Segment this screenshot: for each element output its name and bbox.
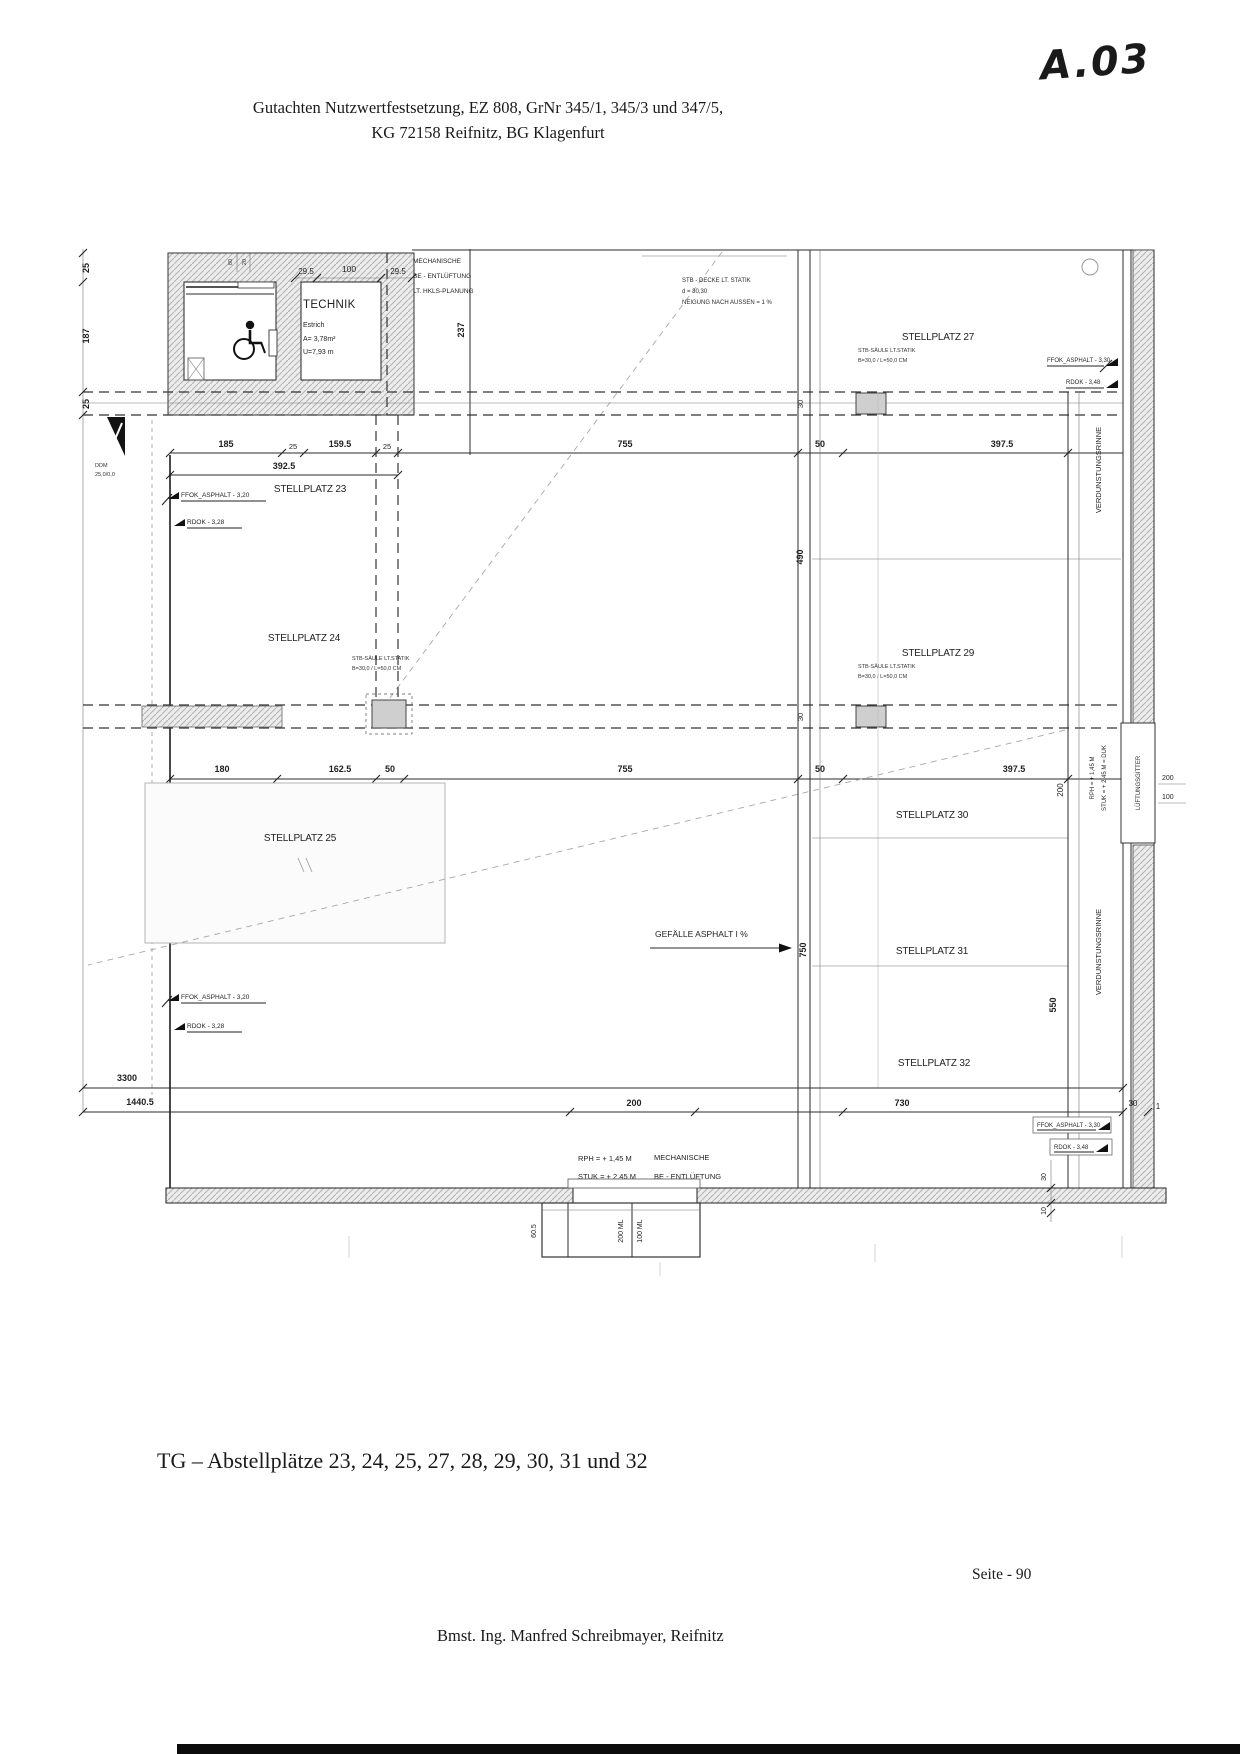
stall-label-25: STELLPLATZ 25 [264,833,337,844]
ffok-3-20-a: FFOK_ASPHALT - 3,20 [181,492,250,499]
dim-29-5-b: 29.5 [390,267,406,276]
ffok-3-30-top: FFOK_ASPHALT - 3,30 [1047,358,1111,364]
dim-20: 20 [242,259,248,265]
technik-estrich: Estrich [303,322,325,329]
ffok-3-20-b: FFOK_ASPHALT - 3,20 [181,994,250,1001]
diagonal-construction-line-a [378,252,722,714]
saeule-note-27-2: B=30,0 / L=50,0 CM [858,358,908,364]
elevator-technik-block [168,252,416,415]
saeule-note-29-1: STB-SÄULE LT.STATIK [858,663,916,670]
gefaelle-label: GEFÄLLE ASPHALT I % [655,929,748,939]
dim-200-right: 200 [1056,783,1065,797]
gefaelle-arrow [650,944,792,953]
mech-top-1: MECHANISCHE [413,258,462,265]
rdok-3-28-a: RDOK - 3,28 [187,519,225,526]
ddm-label-2: 25,0/0,0 [95,472,115,478]
dim-100-gitter: 100 [1162,794,1174,801]
dim-100-ml: 100 ML [637,1219,644,1242]
dim-30-band-top: 30 [796,400,805,408]
dimension-row-bottom [79,1084,1152,1116]
dim-397-5-r2: 397.5 [1003,764,1026,774]
dim-30-wall: 30 [1041,1173,1048,1181]
dim-25-left-mid: 25 [81,399,91,409]
floor-plan-drawing: 29.5 100 29.5 TECHNIK Estrich A= 3,78m² … [0,0,1240,1754]
rph-right: RPH = + 1,45 M [1090,756,1096,799]
dim-25-r1a: 25 [289,442,297,451]
bottom-wall [166,1179,1166,1203]
dim-1: 1 [1156,1102,1161,1111]
stuk-duk-right: STUK = + 2,45 M = DUK [1102,745,1108,811]
saeule-note-27-1: STB-SÄULE LT.STATIK [858,347,916,354]
mech-top-3: LT. HKLS-PLANUNG [413,288,474,295]
dim-490: 490 [795,549,805,564]
stall-label-32: STELLPLATZ 32 [898,1058,971,1069]
scan-artifact-bar [177,1744,1240,1754]
rdok-3-48-top: RDOK - 3,48 [1066,380,1101,386]
rph-bottom: RPH = + 1,45 M [578,1154,632,1163]
ffok-3-30-bottom: FFOK_ASPHALT - 3,30 [1037,1123,1101,1129]
room-label-technik: TECHNIK [303,299,356,311]
lueftungsgitter-label: LÜFTUNGSGITTER [1135,755,1142,810]
dim-200-gitter: 200 [1162,775,1174,782]
left-dimension-line [79,249,87,1112]
dim-80: 80 [228,259,234,265]
saeule-note-24-1: STB-SÄULE LT.STATIK [352,655,410,662]
dimension-row-1 [166,449,1123,479]
ceiling-opening-circle [1082,259,1098,275]
page-number: Seite - 90 [972,1566,1031,1584]
bottom-reference-ticks [349,1236,1122,1276]
verdunstungsrinne-bottom: VERDUNSTUNGSRINNE [1094,909,1103,995]
stall-label-23: STELLPLATZ 23 [274,484,347,495]
figure-caption: TG – Abstellplätze 23, 24, 25, 27, 28, 2… [157,1448,648,1474]
right-gutter-lines [1068,392,1079,1188]
stall-25-region [145,783,445,943]
scanned-document-page: Gutachten Nutzwertfestsetzung, EZ 808, G… [0,0,1240,1754]
dim-750: 750 [798,942,808,957]
decke-note-2: d = 30,30 [682,289,708,295]
dim-200-ml: 200 ML [618,1219,625,1242]
saeule-note-24-2: B=30,0 / L=50,0 CM [352,666,402,672]
dim-200-bottom: 200 [626,1098,641,1108]
dim-392-5: 392.5 [273,461,296,471]
ddm-label-1: DDM [95,463,108,469]
stall-label-31: STELLPLATZ 31 [896,946,969,957]
dim-730: 730 [894,1098,909,1108]
saeule-note-29-2: B=30,0 / L=50,0 CM [858,674,908,680]
rdok-3-48-bottom: RDOK - 3,48 [1054,1145,1089,1151]
dim-29-5-a: 29.5 [298,267,314,276]
dim-550: 550 [1048,997,1058,1012]
dim-237: 237 [456,322,466,337]
dim-755-r1: 755 [617,439,632,449]
dim-25-r1b: 25 [383,442,391,451]
dim-30-band-mid: 30 [796,713,805,721]
mech-top-2: BE - ENTLÜFTUNG [413,272,471,280]
decke-note-3: NEIGUNG NACH AUSSEN = 1 % [682,300,773,306]
dim-50-r2a: 50 [385,764,395,774]
dim-100-top: 100 [342,264,356,274]
construction-band-middle [83,694,1123,734]
dim-60-5: 60.5 [531,1224,538,1238]
dim-30-bottom: 30 [1129,1099,1138,1108]
stall-label-24: STELLPLATZ 24 [268,633,341,644]
stall-label-30: STELLPLATZ 30 [896,810,969,821]
dim-187: 187 [81,328,91,343]
technik-umfang: U=7,93 m [303,349,334,356]
decke-note-1: STB - DECKE LT. STATIK [682,278,751,284]
stall-label-29: STELLPLATZ 29 [902,648,975,659]
dim-162-5: 162.5 [329,764,352,774]
dim-159-5: 159.5 [329,439,352,449]
mech-bottom-1: MECHANISCHE [654,1153,709,1162]
verdunstungsrinne-top: VERDUNSTUNGSRINNE [1094,427,1103,513]
technik-area: A= 3,78m² [303,336,336,343]
dim-755-r2: 755 [617,764,632,774]
dimension-row-2 [166,775,1123,783]
door-marker [107,417,125,456]
dim-25-left-top: 25 [81,263,91,273]
stall-label-27: STELLPLATZ 27 [902,332,975,343]
dim-185: 185 [218,439,233,449]
dim-1440-5: 1440.5 [126,1097,154,1107]
dim-180: 180 [214,764,229,774]
right-stall-dividers [812,559,1121,966]
dim-397-5-r1: 397.5 [991,439,1014,449]
dim-3300: 3300 [117,1073,137,1083]
dim-10-wall: 10 [1041,1207,1048,1215]
footer-author: Bmst. Ing. Manfred Schreibmayer, Reifnit… [437,1626,724,1646]
rdok-3-28-b: RDOK - 3,28 [187,1023,225,1030]
